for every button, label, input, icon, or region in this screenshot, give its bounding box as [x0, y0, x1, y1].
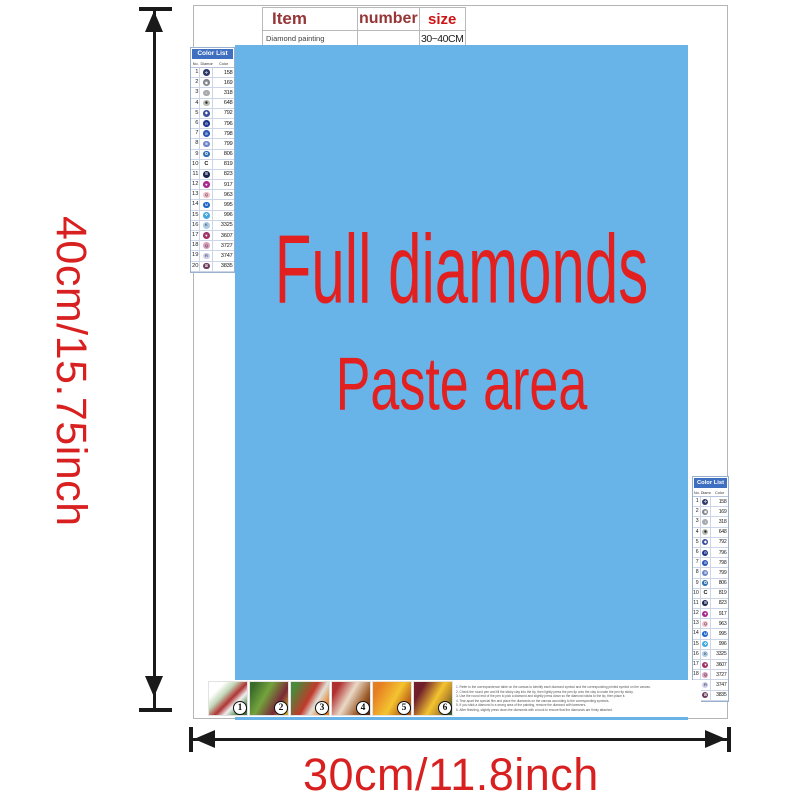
diamond-symbol-cell: R: [701, 680, 712, 689]
diamond-color-dot: K: [203, 222, 210, 229]
diamond-color-dot: ✛: [203, 69, 210, 76]
color-list-column-headers: No. Diamond Color: [693, 489, 728, 497]
row-number: 19: [191, 251, 200, 260]
diamond-symbol-cell: ⊖: [701, 548, 712, 557]
dmc-color-code: 796: [213, 121, 234, 127]
color-list-row: 12♥917: [191, 180, 234, 190]
diamond-color-dot: ♥: [702, 611, 708, 617]
row-number: 8: [191, 139, 200, 148]
dmc-color-code: 995: [711, 631, 728, 637]
dmc-color-code: 169: [711, 509, 728, 515]
diamond-symbol-cell: ✜: [200, 211, 213, 220]
diamond-color-dot: K: [702, 651, 708, 657]
dmc-color-code: 996: [213, 212, 234, 218]
row-number: 16: [693, 650, 701, 659]
dmc-color-code: 799: [711, 570, 728, 576]
diamond-symbol-cell: ♥: [200, 180, 213, 189]
color-list-row: 8⊕799: [693, 568, 728, 578]
color-list-row: 9✪806: [191, 150, 234, 160]
color-list-rows: 1✛1582◉1693♁3184✱6485◆7926⊖7967⊘7988⊕799…: [693, 497, 728, 701]
dmc-color-code: 3747: [711, 682, 728, 688]
row-number: 14: [191, 200, 200, 209]
color-list-row: 11⊞823: [191, 170, 234, 180]
color-list-row: 2◉169: [693, 507, 728, 517]
dmc-color-code: 798: [213, 131, 234, 137]
diamond-symbol-cell: K: [200, 221, 213, 230]
color-list-row: 20⊠3835: [191, 262, 234, 272]
number-header: number: [358, 8, 420, 31]
color-list-title: Color List: [694, 478, 727, 488]
diamond-color-dot: Q: [702, 621, 708, 627]
color-list-row: 8⊕799: [191, 139, 234, 149]
height-arrow-up-head: [145, 11, 163, 32]
dmc-color-code: 3325: [711, 651, 728, 657]
step-number-badge: 1: [233, 701, 247, 715]
dmc-color-code: 3747: [213, 253, 234, 259]
row-number: 2: [693, 507, 701, 516]
diamond-symbol-cell: ✛: [200, 68, 213, 77]
row-number: 11: [693, 599, 701, 608]
diamond-color-dot: ◉: [203, 79, 210, 86]
row-number: 12: [191, 180, 200, 189]
diamond-color-dot: R: [203, 253, 210, 260]
row-number: 10: [191, 160, 200, 169]
diamond-symbol-cell: R: [200, 251, 213, 260]
width-arrow-right-head: [705, 730, 726, 748]
diamond-symbol-cell: ◆: [200, 109, 213, 118]
color-list-column-headers: No. Diamond Color: [191, 60, 234, 68]
step-thumbnail: 3: [290, 681, 330, 716]
dmc-color-code: 796: [711, 550, 728, 556]
diamond-color-dot: ⊕: [203, 141, 210, 148]
color-list-row: 3♁318: [693, 517, 728, 527]
row-number: 3: [693, 517, 701, 526]
color-list-row: 3♁318: [191, 88, 234, 98]
diamond-symbol-cell: ✪: [701, 579, 712, 588]
dmc-color-code: 3835: [213, 263, 234, 269]
step-thumbnail: 1: [208, 681, 248, 716]
dmc-color-code: 3727: [213, 243, 234, 249]
paste-area-title-line2: Paste area: [235, 342, 688, 429]
row-number: 9: [191, 150, 200, 159]
diamond-symbol-cell: ◉: [701, 507, 712, 516]
color-list-rows: 1✛1582◉1693♁3184✱6485◆7926⊖7967⊘7988⊕799…: [191, 68, 234, 272]
diamond-color-dot: ⊘: [702, 560, 708, 566]
color-list-row: 18Q3727: [693, 670, 728, 680]
color-list-right: Color List No. Diamond Color 1✛1582◉1693…: [692, 476, 729, 702]
dmc-color-code: 819: [711, 590, 728, 596]
row-number: 1: [693, 497, 701, 506]
dmc-color-code: 995: [213, 202, 234, 208]
color-list-row: 12♥917: [693, 609, 728, 619]
color-list-row: 9✪806: [693, 579, 728, 589]
color-list-row: 2◉169: [191, 78, 234, 88]
diamond-color-dot: ♁: [702, 519, 708, 525]
diamond-symbol-cell: ▼: [200, 231, 213, 240]
row-number: 1: [191, 68, 200, 77]
color-list-row: 13Q963: [693, 619, 728, 629]
color-list-row: 7⊘798: [191, 129, 234, 139]
dmc-color-code: 963: [711, 621, 728, 627]
dmc-color-code: 996: [711, 641, 728, 647]
diamond-symbol-cell: C: [701, 589, 712, 598]
diamond-color-dot: ⊕: [702, 570, 708, 576]
step-number-badge: 3: [315, 701, 329, 715]
color-list-row: 14M995: [693, 629, 728, 639]
diamond-color-dot: ⊠: [702, 692, 708, 698]
diamond-color-dot: ⊠: [203, 263, 210, 270]
col-color: Color: [213, 62, 234, 66]
dmc-color-code: 158: [213, 70, 234, 76]
item-info-table: Item number size Diamond painting 30~40C…: [262, 7, 466, 47]
step-thumbnail: 2: [249, 681, 289, 716]
diamond-symbol-cell: ⊕: [701, 568, 712, 577]
step-number-badge: 2: [274, 701, 288, 715]
dmc-color-code: 917: [711, 611, 728, 617]
color-list-row: 10C819: [191, 160, 234, 170]
diamond-color-dot: ♁: [203, 90, 210, 97]
diamond-color-dot: ✱: [702, 529, 708, 535]
diamond-symbol-cell: ♁: [701, 517, 712, 526]
width-arrow-line: [193, 738, 727, 741]
row-number: 11: [191, 170, 200, 179]
diamond-symbol-cell: M: [200, 200, 213, 209]
step-number-badge: 4: [356, 701, 370, 715]
diamond-symbol-cell: ◆: [701, 538, 712, 547]
row-number: 5: [693, 538, 701, 547]
row-number: 17: [191, 231, 200, 240]
diamond-symbol-cell: ⊠: [701, 691, 712, 700]
item-table-header-row: Item number size: [263, 8, 466, 31]
diamond-color-dot: ◆: [203, 110, 210, 117]
dmc-color-code: 819: [213, 161, 234, 167]
size-header: size: [419, 8, 465, 31]
color-list-row: 17▼3607: [191, 231, 234, 241]
row-number: 5: [191, 109, 200, 118]
row-number: 9: [693, 579, 701, 588]
diamond-symbol-cell: ✜: [701, 640, 712, 649]
dmc-color-code: 823: [711, 600, 728, 606]
diamond-symbol-cell: ♥: [701, 609, 712, 618]
color-list-row: 17▼3607: [693, 660, 728, 670]
color-list-row: 1✛158: [693, 497, 728, 507]
diamond-color-dot: ✪: [702, 580, 708, 586]
dmc-color-code: 3607: [213, 233, 234, 239]
row-number: 7: [693, 558, 701, 567]
row-number: 4: [191, 99, 200, 108]
color-list-row: 7⊘798: [693, 558, 728, 568]
diamond-color-dot: ✜: [702, 641, 708, 647]
row-number: 6: [191, 119, 200, 128]
dmc-color-code: 648: [213, 100, 234, 106]
diamond-color-dot: M: [203, 202, 210, 209]
diamond-symbol-cell: ◉: [200, 78, 213, 87]
width-dimension-label: 30cm/11.8inch: [303, 749, 599, 801]
diamond-symbol-cell: ⊘: [701, 558, 712, 567]
col-diamond: Diamond: [200, 62, 213, 66]
color-list-left: Color List No. Diamond Color 1✛1582◉1693…: [190, 47, 235, 273]
step-number-badge: 6: [438, 701, 452, 715]
dmc-color-code: 806: [711, 580, 728, 586]
color-list-row: 4✱648: [191, 99, 234, 109]
diamond-symbol-cell: ♁: [200, 88, 213, 97]
dmc-color-code: 3727: [711, 672, 728, 678]
dmc-color-code: 3607: [711, 662, 728, 668]
row-number: 6: [693, 548, 701, 557]
dmc-color-code: 792: [711, 539, 728, 545]
row-number: 13: [191, 190, 200, 199]
row-number: 2: [191, 78, 200, 87]
row-number: 12: [693, 609, 701, 618]
diamond-color-dot: R: [702, 682, 708, 688]
diamond-color-dot: ⊖: [702, 550, 708, 556]
diamond-color-dot: Q: [203, 242, 210, 249]
width-arrow-left-head: [194, 730, 215, 748]
row-number: 15: [191, 211, 200, 220]
color-list-row: 14M995: [191, 200, 234, 210]
dmc-color-code: 3835: [711, 692, 728, 698]
row-number: 18: [191, 241, 200, 250]
color-list-row: 16K3325: [191, 221, 234, 231]
row-number: 8: [693, 568, 701, 577]
color-list-row: 5◆792: [693, 538, 728, 548]
diamond-color-dot: ✪: [203, 151, 210, 158]
diamond-color-dot: ▼: [203, 232, 210, 239]
dmc-color-code: 798: [711, 560, 728, 566]
diamond-symbol-cell: C: [200, 160, 213, 169]
diamond-color-dot: ⊞: [203, 171, 210, 178]
color-list-title: Color List: [192, 49, 233, 59]
color-list-row: 6⊖796: [693, 548, 728, 558]
diamond-color-dot: ✱: [203, 100, 210, 107]
dmc-color-code: 792: [213, 110, 234, 116]
diamond-symbol-cell: ⊠: [200, 262, 213, 271]
width-arrow-right-cap: [727, 727, 731, 752]
color-list-row: 10C819: [693, 589, 728, 599]
diamond-symbol-cell: Q: [701, 670, 712, 679]
dmc-color-code: 823: [213, 171, 234, 177]
col-no: No.: [191, 62, 200, 66]
row-number: 17: [693, 660, 701, 669]
color-list-row: 16K3325: [693, 650, 728, 660]
color-list-row: 15✜996: [693, 640, 728, 650]
diamond-symbol-cell: ✱: [200, 99, 213, 108]
col-diamond: Diamond: [701, 491, 712, 495]
row-number: 18: [693, 670, 701, 679]
diamond-color-dot: ✜: [203, 212, 210, 219]
row-number: 15: [693, 640, 701, 649]
diamond-symbol-cell: ✱: [701, 528, 712, 537]
height-dimension-label: 40cm/15.75inch: [46, 216, 95, 527]
step-thumbnail: 5: [372, 681, 412, 716]
instruction-line: 6. After finishing, slightly press down …: [456, 708, 698, 713]
height-arrow-line: [153, 11, 156, 709]
color-list-row: 6⊖796: [191, 119, 234, 129]
diamond-color-dot: ♥: [203, 181, 210, 188]
step-number-badge: 5: [397, 701, 411, 715]
row-number: 13: [693, 619, 701, 628]
diamond-symbol-cell: ⊖: [200, 119, 213, 128]
color-list-row: 13Q963: [191, 190, 234, 200]
dmc-color-code: 158: [711, 499, 728, 505]
diamond-color-dot: ▼: [702, 662, 708, 668]
diamond-symbol-cell: Q: [200, 241, 213, 250]
item-header: Item: [263, 8, 358, 31]
color-list-row: 11⊞823: [693, 599, 728, 609]
color-list-row: 4✱648: [693, 528, 728, 538]
paste-area-title-line1: Full diamonds: [235, 213, 688, 326]
row-number: 7: [191, 129, 200, 138]
row-number: 16: [191, 221, 200, 230]
dmc-color-code: 318: [711, 519, 728, 525]
diamond-symbol: C: [703, 590, 707, 596]
diamond-symbol-cell: ✛: [701, 497, 712, 506]
diamond-color-dot: ◆: [702, 539, 708, 545]
instructions-text: 1. Refer to the correspondence table on …: [456, 685, 698, 713]
dmc-color-code: 318: [213, 90, 234, 96]
diamond-symbol-cell: ⊘: [200, 129, 213, 138]
diamond-color-dot: Q: [203, 192, 210, 199]
dmc-color-code: 963: [213, 192, 234, 198]
dmc-color-code: 799: [213, 141, 234, 147]
diamond-symbol-cell: ⊞: [701, 599, 712, 608]
row-number: 10: [693, 589, 701, 598]
diamond-symbol-cell: ⊞: [200, 170, 213, 179]
step-thumbnail: 4: [331, 681, 371, 716]
dmc-color-code: 917: [213, 182, 234, 188]
step-thumbnails: 123456: [208, 681, 453, 716]
color-list-row: 18Q3727: [191, 241, 234, 251]
diamond-color-dot: ⊘: [203, 130, 210, 137]
diamond-symbol-cell: ⊕: [200, 139, 213, 148]
paste-area: Full diamonds Paste area: [235, 45, 688, 720]
col-no: No.: [693, 491, 701, 495]
row-number: 14: [693, 629, 701, 638]
color-list-row: 1✛158: [191, 68, 234, 78]
footer-strip: 123456 1. Refer to the correspondence ta…: [204, 680, 701, 717]
row-number: 20: [191, 262, 200, 271]
diamond-symbol: C: [204, 161, 208, 167]
diamond-symbol-cell: K: [701, 650, 712, 659]
step-thumbnail: 6: [413, 681, 453, 716]
diamond-color-dot: ✛: [702, 499, 708, 505]
row-number: 3: [191, 88, 200, 97]
dmc-color-code: 648: [711, 529, 728, 535]
diamond-symbol-cell: ▼: [701, 660, 712, 669]
row-number: 4: [693, 528, 701, 537]
col-color: Color: [711, 491, 728, 495]
diamond-color-dot: ◉: [702, 509, 708, 515]
diamond-color-dot: ⊖: [203, 120, 210, 127]
diamond-symbol-cell: Q: [200, 190, 213, 199]
color-list-row: 19R3747: [191, 251, 234, 261]
diamond-color-dot: ⊞: [702, 600, 708, 606]
color-list-row: 15✜996: [191, 211, 234, 221]
height-arrow-down-head: [145, 676, 163, 697]
dmc-color-code: 806: [213, 151, 234, 157]
diamond-symbol-cell: Q: [701, 619, 712, 628]
dmc-color-code: 3325: [213, 222, 234, 228]
diamond-color-dot: Q: [702, 672, 708, 678]
diamond-color-dot: M: [702, 631, 708, 637]
diamond-symbol-cell: M: [701, 629, 712, 638]
color-list-row: 5◆792: [191, 109, 234, 119]
dmc-color-code: 169: [213, 80, 234, 86]
diamond-symbol-cell: ✪: [200, 150, 213, 159]
